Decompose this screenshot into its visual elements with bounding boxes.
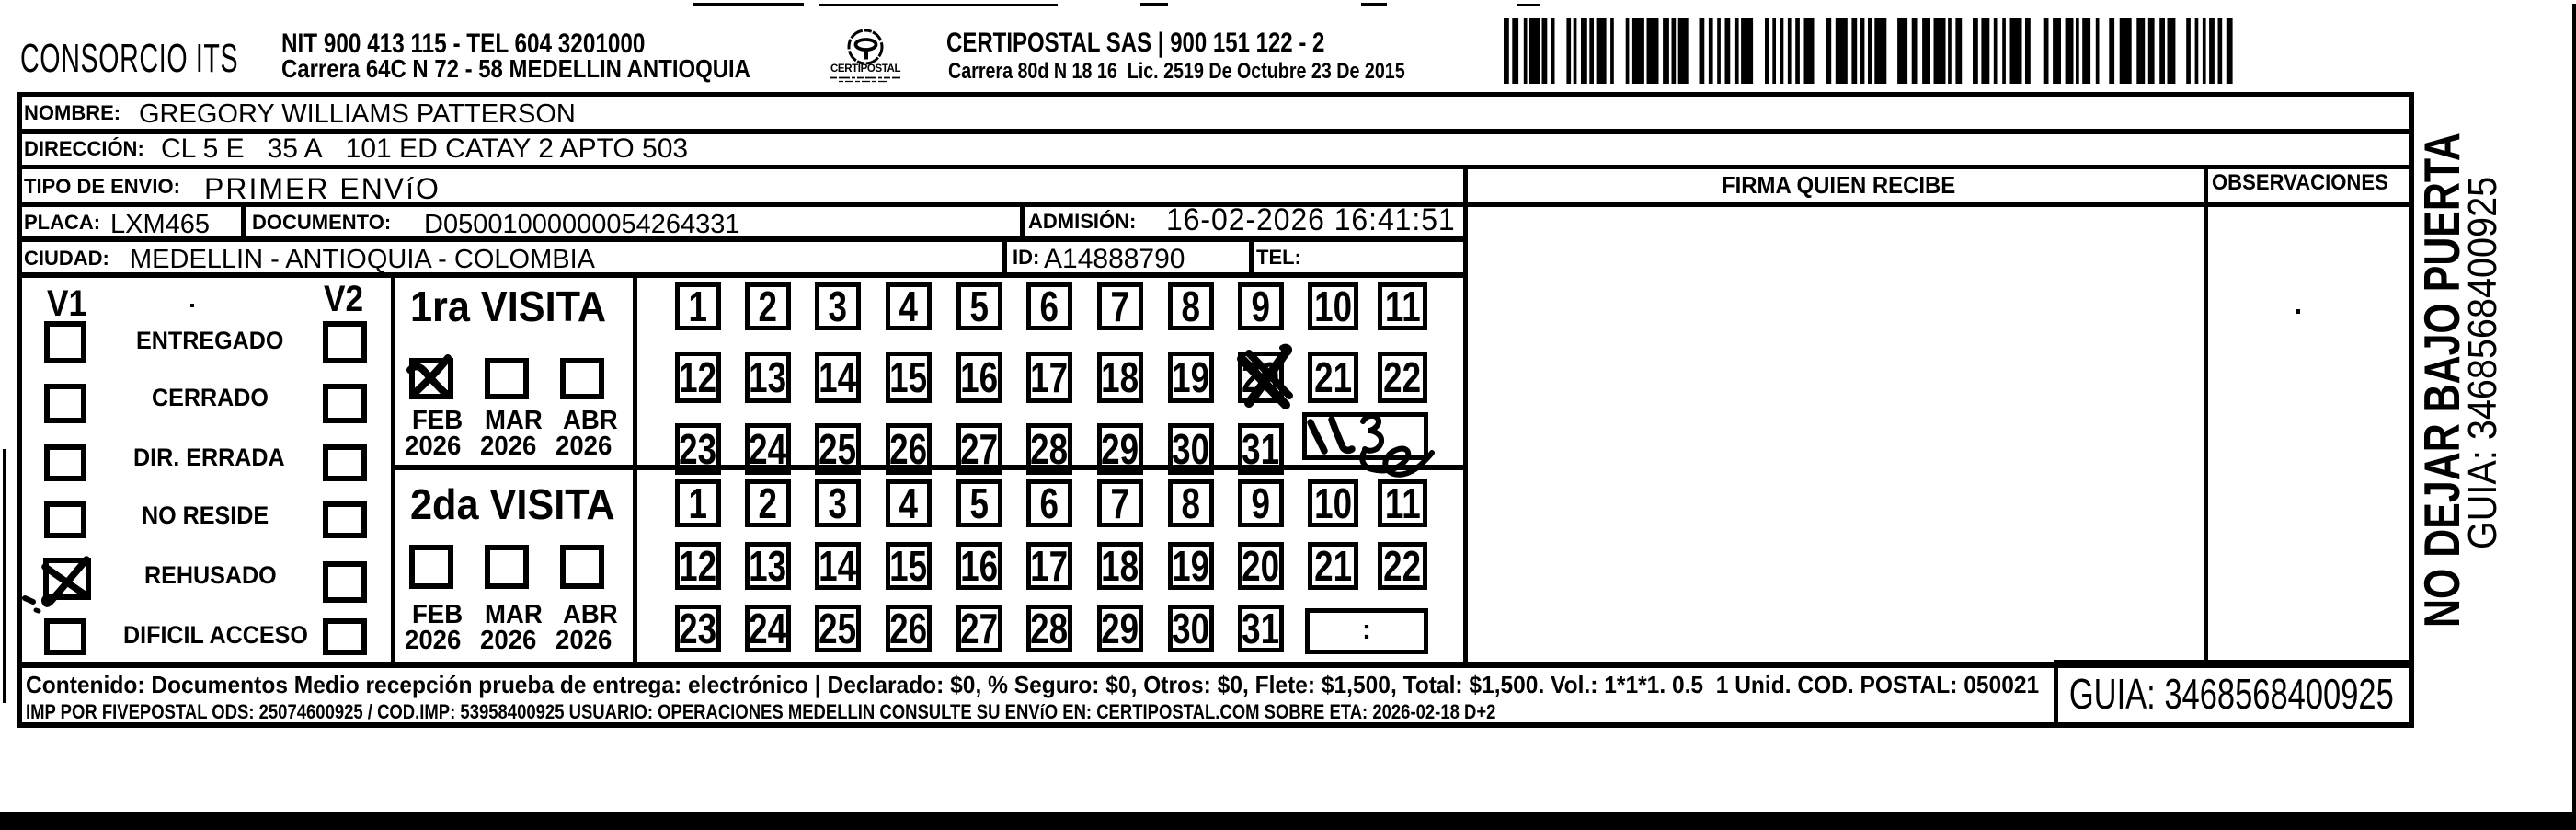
svg-text:CERTIPOSTAL: CERTIPOSTAL — [830, 63, 900, 75]
